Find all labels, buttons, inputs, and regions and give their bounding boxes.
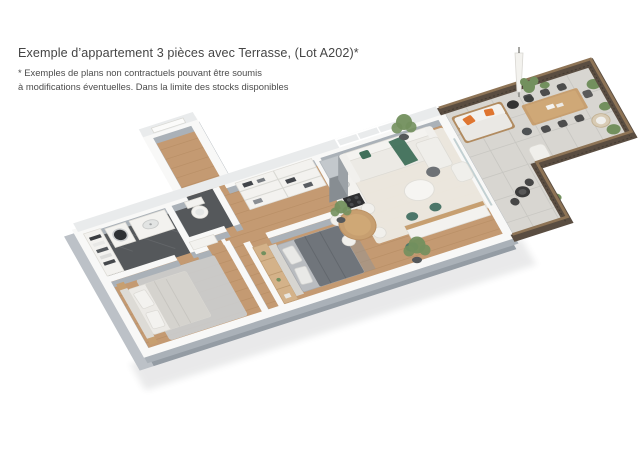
floorplan-3d-render <box>0 0 640 470</box>
apartment-floorplan <box>29 0 640 391</box>
page-background: Exemple d’appartement 3 pièces avec Terr… <box>0 0 640 470</box>
